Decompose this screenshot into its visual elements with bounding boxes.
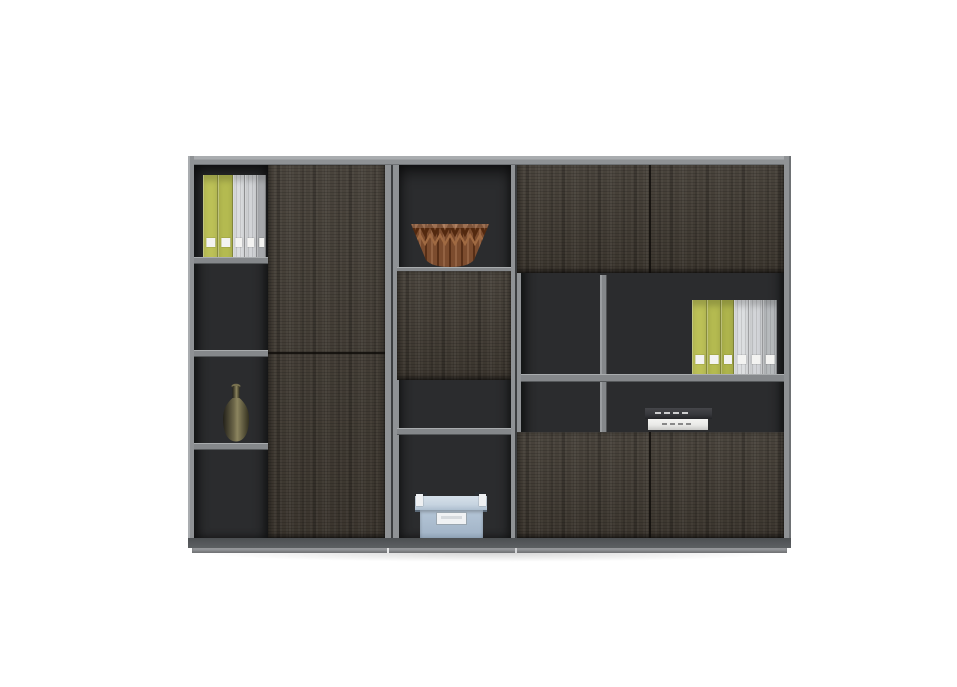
box-label-plate <box>436 512 467 525</box>
olive-vase <box>219 383 253 443</box>
binder-white <box>734 300 749 374</box>
product-photo-page: { "image": { "type": "product-photo", "s… <box>0 0 957 687</box>
right-top-doors <box>517 163 784 273</box>
binder-green <box>707 300 721 374</box>
binder-label <box>766 355 775 364</box>
left-column-shelf-2 <box>194 350 268 357</box>
copper-bowl <box>410 224 490 267</box>
box-clip-right <box>479 494 486 506</box>
book-dark <box>645 408 712 419</box>
floor-shadow <box>196 553 783 562</box>
right-middle-shelf <box>521 374 784 382</box>
binder-gray <box>763 300 777 374</box>
cabinet-bottom-rail <box>188 538 791 548</box>
binder-label <box>221 238 230 247</box>
left-binder-row <box>203 175 266 257</box>
binder-white <box>749 300 763 374</box>
binder-label <box>235 238 242 247</box>
binder-white <box>233 175 245 257</box>
cabinet-right-frame <box>784 156 791 548</box>
binder-label <box>247 238 254 247</box>
right-binder-row <box>692 300 777 374</box>
right-top-door-seam <box>649 163 651 273</box>
binder-label <box>752 355 761 364</box>
binder-green <box>218 175 233 257</box>
left-column-shelf-3 <box>194 443 268 450</box>
binder-green <box>721 300 734 374</box>
binder-green <box>692 300 707 374</box>
binder-label <box>695 355 704 364</box>
book-white <box>648 419 708 430</box>
right-bottom-doors <box>517 432 784 538</box>
binder-green <box>203 175 218 257</box>
middle-open-shelf <box>397 428 512 435</box>
binder-label <box>723 355 731 364</box>
binder-label <box>259 238 265 247</box>
cabinet-top-frame <box>188 156 791 165</box>
binder-label <box>737 355 746 364</box>
left-column-shelf-1 <box>194 257 268 264</box>
left-door-panel <box>268 163 385 538</box>
cabinet-left-frame <box>188 156 194 548</box>
binder-label <box>710 355 719 364</box>
right-bottom-door-seam <box>649 432 651 538</box>
wall-cabinet <box>188 156 791 553</box>
storage-box <box>415 492 487 538</box>
binder-label <box>206 238 215 247</box>
binder-gray <box>257 175 266 257</box>
book-stack <box>645 408 712 430</box>
binder-white <box>245 175 257 257</box>
box-clip-left <box>416 494 423 506</box>
middle-wood-panel <box>397 271 512 380</box>
right-center-divider <box>600 275 607 432</box>
left-door-seam <box>268 352 385 354</box>
